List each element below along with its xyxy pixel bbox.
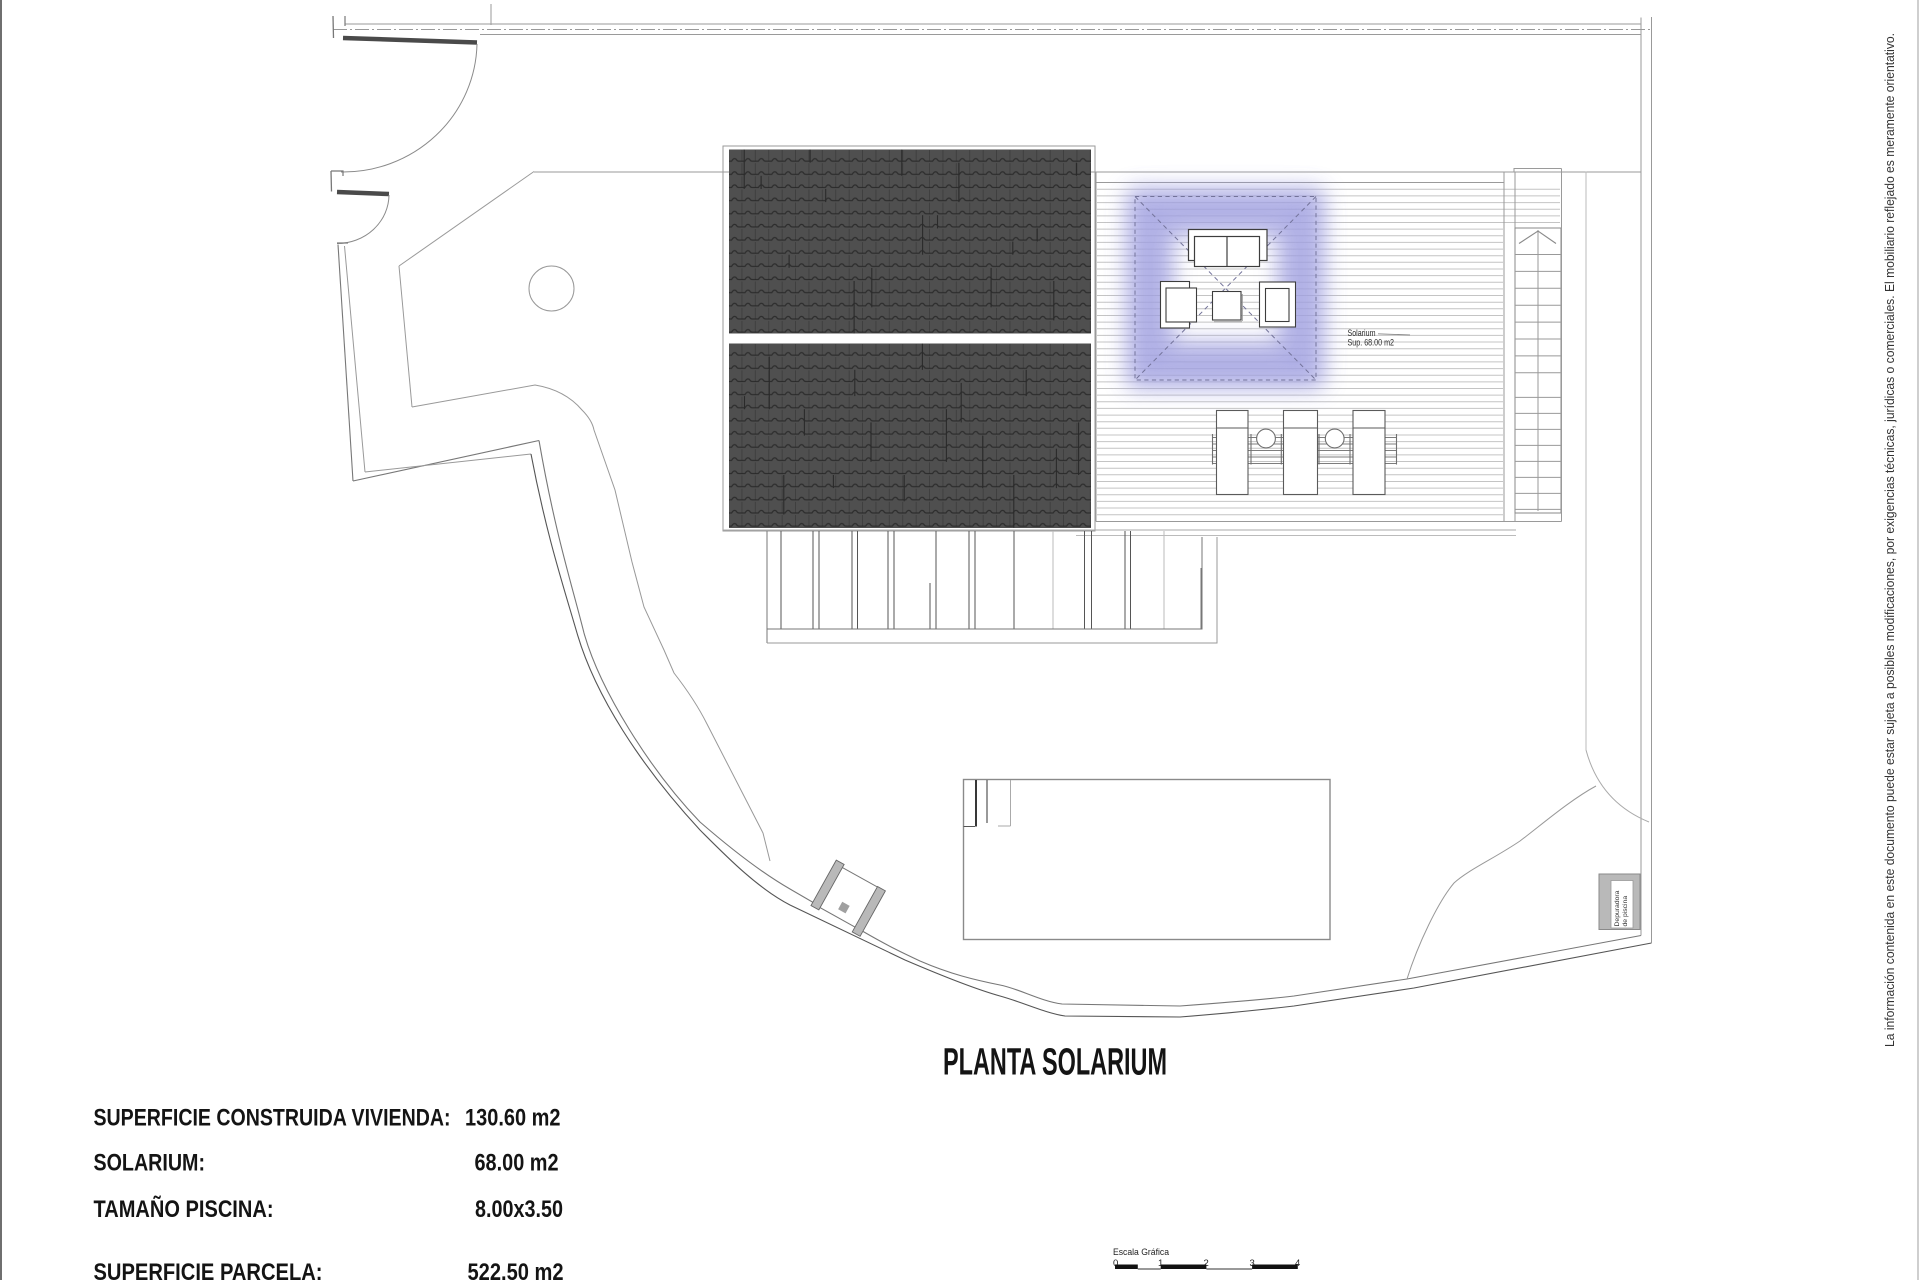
svg-text:SUPERFICIE CONSTRUIDA VIVIENDA: SUPERFICIE CONSTRUIDA VIVIENDA:	[94, 1105, 451, 1132]
svg-text:Escala Gráfica: Escala Gráfica	[1113, 1247, 1170, 1258]
svg-text:SUPERFICIE PARCELA:: SUPERFICIE PARCELA:	[94, 1259, 323, 1280]
svg-text:PLANTA SOLARIUM: PLANTA SOLARIUM	[943, 1042, 1167, 1084]
svg-text:de piscina: de piscina	[1622, 896, 1629, 927]
svg-text:522.50 m2: 522.50 m2	[468, 1259, 564, 1280]
svg-text:La información contenida en es: La información contenida en este documen…	[1883, 33, 1897, 1047]
svg-text:68.00 m2: 68.00 m2	[475, 1150, 559, 1177]
svg-text:Sup. 68.00 m2: Sup. 68.00 m2	[1348, 338, 1395, 349]
svg-text:8.00x3.50: 8.00x3.50	[475, 1196, 563, 1223]
svg-text:Depuradora: Depuradora	[1614, 890, 1621, 926]
svg-text:SOLARIUM:: SOLARIUM:	[94, 1150, 206, 1177]
svg-text:TAMAÑO PISCINA:: TAMAÑO PISCINA:	[94, 1195, 274, 1223]
svg-text:130.60 m2: 130.60 m2	[465, 1105, 561, 1132]
